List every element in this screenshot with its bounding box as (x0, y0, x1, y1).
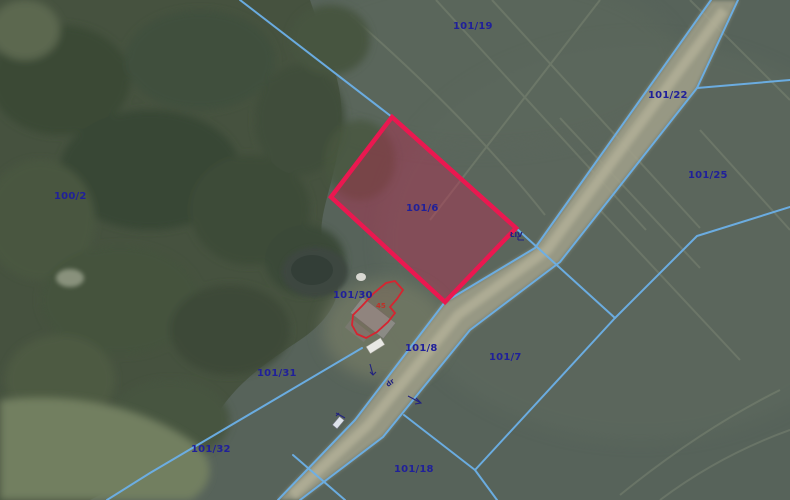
aerial-map-canvas (0, 0, 790, 500)
small-shed (356, 273, 366, 281)
pond-deep-water (291, 255, 333, 285)
map-viewport[interactable]: 101/19 101/22 101/25 100/2 101/6 101/30 … (0, 0, 790, 500)
forest-clearing-spot (56, 269, 84, 287)
